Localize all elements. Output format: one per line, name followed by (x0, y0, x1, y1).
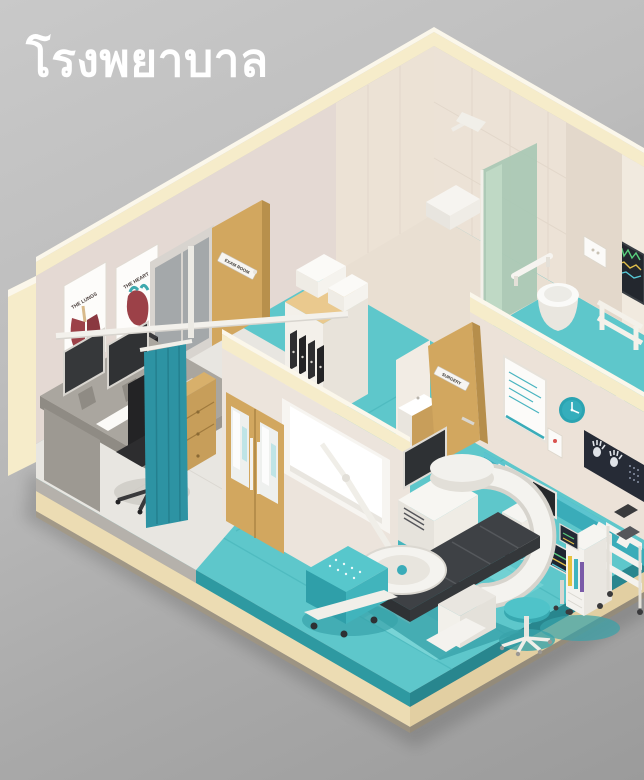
page-title: โรงพยาบาล (26, 24, 269, 97)
light-handle (397, 565, 407, 575)
call-button-red (553, 439, 557, 443)
faucet (417, 397, 420, 400)
door-handle (250, 438, 253, 490)
gas-cylinder-purple (580, 562, 584, 592)
hospital-illustration: THE LUNGS THE HEART EXAM ROOM (0, 0, 644, 780)
wall-clock (559, 397, 585, 423)
shower-glass-panel (482, 143, 537, 330)
wall-cut-face (8, 276, 36, 476)
anesthesia-machine (560, 524, 612, 616)
door-handle (253, 270, 257, 274)
rail-pole (188, 246, 194, 338)
gas-cylinder-yellow (568, 556, 572, 586)
isometric-hospital-scene: THE LUNGS THE HEART EXAM ROOM (0, 0, 644, 780)
gas-cylinder-teal (574, 559, 578, 589)
stool-seat (504, 597, 550, 619)
lead-curtain (140, 341, 192, 528)
xray-tube-head (430, 454, 494, 492)
door-handle (257, 442, 260, 494)
